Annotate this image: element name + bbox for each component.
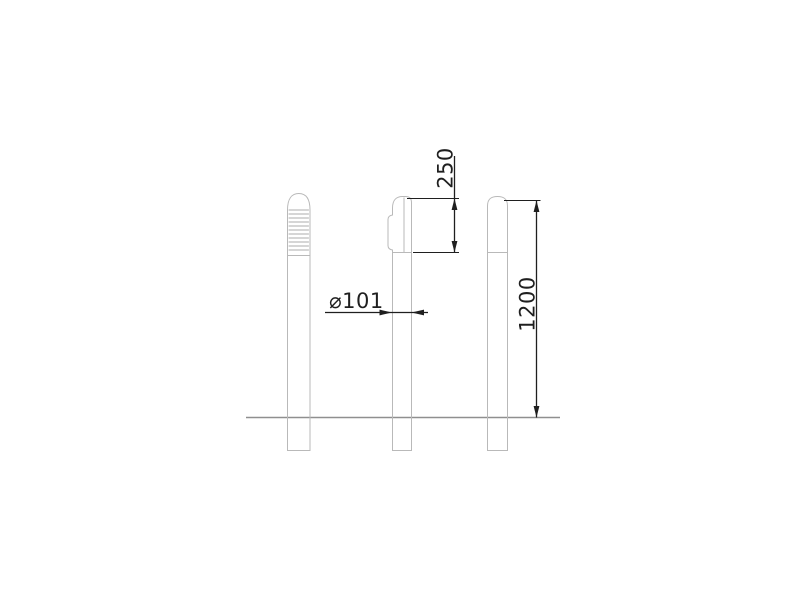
middle-bollard-outline bbox=[388, 197, 412, 451]
dimension-cap-height-label: 250 bbox=[433, 147, 457, 189]
dimension-diameter: ⌀101 bbox=[325, 289, 428, 315]
bollard-drawing: 250 1200 ⌀101 bbox=[0, 0, 800, 600]
dimension-post-height: 1200 bbox=[504, 201, 541, 418]
dimension-diameter-label: ⌀101 bbox=[329, 289, 384, 313]
arrow-down-icon bbox=[534, 406, 540, 418]
arrow-up-icon bbox=[534, 201, 540, 213]
right-bollard-outline bbox=[488, 197, 508, 451]
middle-bollard bbox=[388, 197, 412, 451]
arrow-left-icon bbox=[412, 310, 425, 316]
arrow-up-icon bbox=[452, 199, 458, 211]
dimension-post-height-label: 1200 bbox=[515, 276, 539, 331]
left-bollard bbox=[288, 194, 311, 451]
dimension-cap-height: 250 bbox=[407, 147, 459, 252]
technical-drawing-canvas: 250 1200 ⌀101 bbox=[0, 0, 800, 600]
left-bollard-outline bbox=[288, 194, 311, 451]
arrow-down-icon bbox=[452, 241, 458, 253]
right-bollard bbox=[488, 197, 508, 451]
reflective-band bbox=[289, 210, 309, 250]
